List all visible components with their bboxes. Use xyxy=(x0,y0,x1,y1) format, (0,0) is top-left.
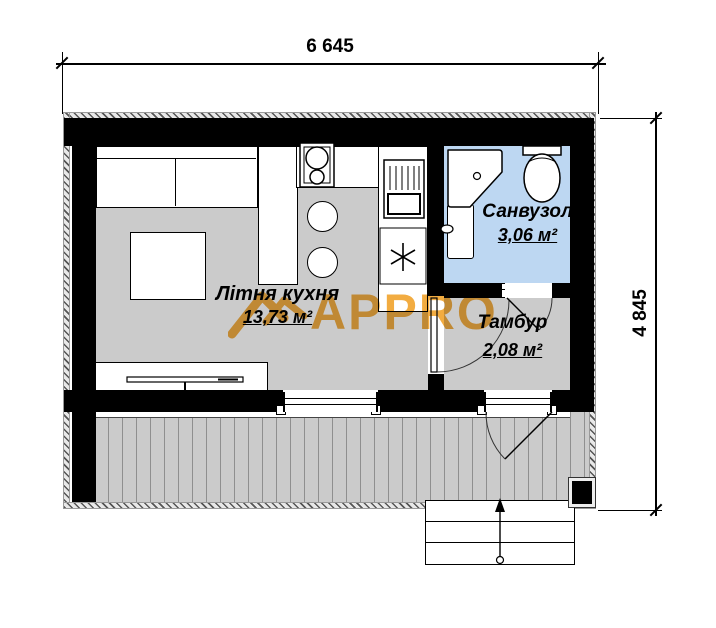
toilet xyxy=(523,146,561,202)
stove xyxy=(300,143,334,187)
room-area-kitchen: 13,73 м² xyxy=(170,308,385,327)
burner-small-icon xyxy=(310,170,324,184)
room-name-kitchen: Літня кухня xyxy=(170,284,385,305)
room-name-bathroom: Санвузол xyxy=(470,202,585,222)
up-arrow-icon xyxy=(495,498,505,512)
shower-drain-icon xyxy=(474,173,481,180)
kitchen-sink xyxy=(384,160,424,218)
dimension-line-right xyxy=(655,112,657,516)
arrow-start-circle xyxy=(497,557,504,564)
freezer xyxy=(380,228,426,284)
basin-faucet-icon xyxy=(441,225,453,233)
dimension-height-label: 4 845 xyxy=(630,268,652,358)
floor-plan-canvas: Літня кухня 13,73 м² Санвузол 3,06 м² Та… xyxy=(0,0,716,628)
entrance-door xyxy=(486,412,552,459)
stairs-direction xyxy=(495,498,505,564)
dimension-line-top xyxy=(56,63,606,65)
room-area-bathroom: 3,06 м² xyxy=(470,226,585,245)
tv xyxy=(127,377,243,391)
burner-large-icon xyxy=(306,147,328,169)
room-name-vestibule: Тамбур xyxy=(455,313,570,333)
room-area-vestibule: 2,08 м² xyxy=(455,341,570,360)
door-leaf xyxy=(505,412,552,459)
shower-tray xyxy=(448,150,502,207)
sink-basin xyxy=(388,194,420,214)
door-swing-arc xyxy=(486,412,505,459)
dimension-width-label: 6 645 xyxy=(270,36,390,58)
